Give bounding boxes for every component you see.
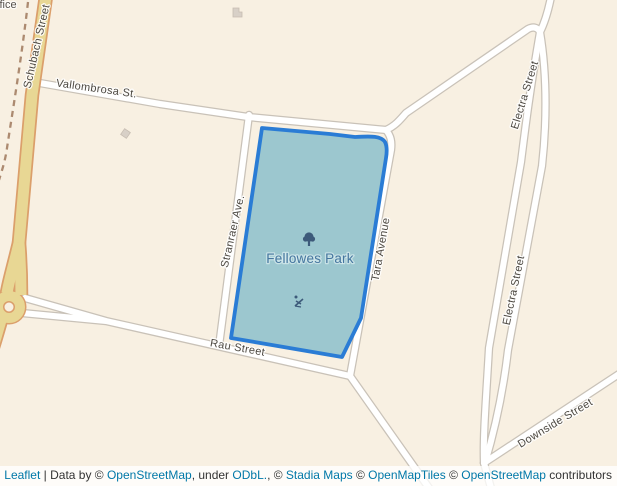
map-canvas[interactable]: fice Schubach Street Vallombrosa St. Str…: [0, 0, 617, 486]
attribution-text: ©: [353, 468, 369, 482]
clipped-poi-label: fice: [0, 0, 17, 11]
attribution-link-openstreetmap-2[interactable]: OpenStreetMap: [461, 468, 546, 482]
attribution-link-odbl[interactable]: ODbL.: [232, 468, 267, 482]
attribution-link-openstreetmap[interactable]: OpenStreetMap: [107, 468, 192, 482]
attribution-text: | Data by ©: [40, 468, 107, 482]
attribution-text: , under: [192, 468, 233, 482]
attribution-text: , ©: [267, 468, 286, 482]
attribution-text: contributors: [546, 468, 612, 482]
attribution-link-leaflet[interactable]: Leaflet: [4, 468, 40, 482]
map-view: fice Schubach Street Vallombrosa St. Str…: [0, 0, 617, 486]
attribution-bar: Leaflet | Data by © OpenStreetMap, under…: [0, 466, 617, 486]
attribution-text: ©: [446, 468, 462, 482]
park-label: Fellowes Park: [266, 251, 353, 266]
attribution-link-stadia-maps[interactable]: Stadia Maps: [286, 468, 353, 482]
attribution-link-openmaptiles[interactable]: OpenMapTiles: [368, 468, 446, 482]
